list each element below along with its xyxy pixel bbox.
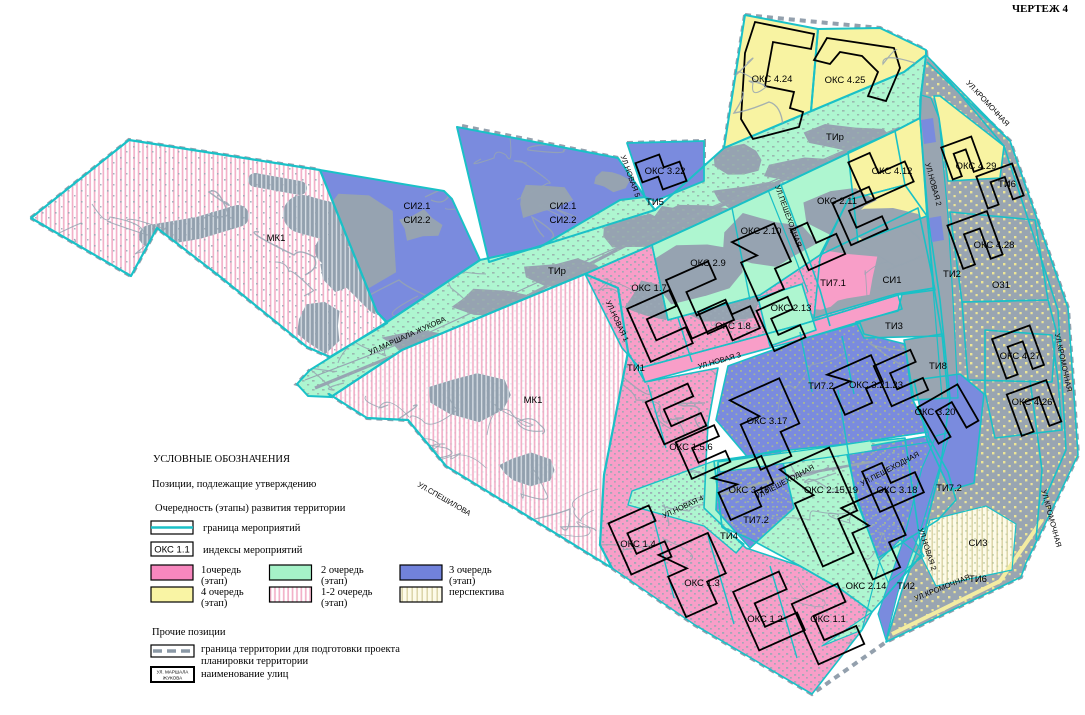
svg-text:(этап): (этап) [321,576,348,587]
svg-text:ЖУКОВА: ЖУКОВА [163,676,183,681]
svg-text:О31: О31 [992,280,1010,291]
svg-text:ТИ5: ТИ5 [646,197,664,208]
svg-text:ТИ3: ТИ3 [885,321,903,332]
svg-text:ОКС 1.3: ОКС 1.3 [684,578,720,589]
svg-text:СИ1: СИ1 [883,275,902,286]
svg-text:СИ2.2: СИ2.2 [550,215,577,226]
svg-text:перспектива: перспектива [449,587,504,598]
svg-text:ОКС 2.10: ОКС 2.10 [741,226,782,237]
svg-text:ТИ2: ТИ2 [943,269,961,280]
svg-text:ОКС 2.11: ОКС 2.11 [817,196,857,207]
svg-text:(этап): (этап) [321,598,348,609]
svg-text:ТИ7.1: ТИ7.1 [820,278,846,289]
svg-text:МК1: МК1 [524,395,543,406]
svg-text:ОКС 1.8: ОКС 1.8 [715,321,751,332]
svg-text:СИ2.2: СИ2.2 [404,215,431,226]
svg-text:Очередность (этапы) развития т: Очередность (этапы) развития территории [155,503,346,514]
svg-text:ТИ7.2: ТИ7.2 [936,483,962,494]
svg-text:ОКС 2.13: ОКС 2.13 [771,303,812,314]
svg-text:ОКС 1.5,6: ОКС 1.5,6 [669,442,712,453]
svg-text:планировки территории: планировки территории [201,656,308,667]
svg-text:ТИ7.2: ТИ7.2 [743,515,769,526]
svg-text:(этап): (этап) [201,576,228,587]
svg-text:граница мероприятий: граница мероприятий [203,523,301,534]
svg-text:2 очередь: 2 очередь [321,565,364,576]
svg-text:ОКС 2.9: ОКС 2.9 [690,258,726,269]
svg-text:ОКС 3.18: ОКС 3.18 [877,485,918,496]
svg-text:СИ2.1: СИ2.1 [550,201,577,212]
svg-text:ТИ1: ТИ1 [627,363,645,374]
svg-text:ТИр: ТИр [826,132,844,143]
svg-text:наименование улиц: наименование улиц [201,669,289,680]
svg-text:индексы мероприятий: индексы мероприятий [203,545,303,556]
svg-text:ОКС 2.14: ОКС 2.14 [846,581,887,592]
svg-text:ОКС 1.2: ОКС 1.2 [747,614,783,625]
svg-text:ОКС 2.15,19: ОКС 2.15,19 [804,485,858,496]
svg-text:Позиции, подлежащие утверждени: Позиции, подлежащие утверждению [152,479,317,490]
svg-text:ОКС 1.1: ОКС 1.1 [154,545,190,556]
svg-text:ТИ7.2: ТИ7.2 [808,381,834,392]
svg-text:УСЛОВНЫЕ ОБОЗНАЧЕНИЯ: УСЛОВНЫЕ ОБОЗНАЧЕНИЯ [153,454,290,465]
svg-text:3 очередь: 3 очередь [449,565,492,576]
svg-text:4 очередь: 4 очередь [201,587,244,598]
svg-text:ОКС 1.4: ОКС 1.4 [620,539,656,550]
svg-text:ТИр: ТИр [548,266,566,277]
svg-text:СИ3: СИ3 [969,538,988,549]
svg-text:ОКС 3.22: ОКС 3.22 [645,166,686,177]
svg-text:ОКС 1.7: ОКС 1.7 [631,283,667,294]
svg-text:МК1: МК1 [267,233,286,244]
svg-text:ОКС 1.1: ОКС 1.1 [810,614,846,625]
svg-text:ТИ6: ТИ6 [969,574,987,585]
svg-text:ТИ2: ТИ2 [897,581,915,592]
svg-text:ЧЕРТЕЖ 4: ЧЕРТЕЖ 4 [1012,3,1069,15]
svg-text:ОКС 4.27: ОКС 4.27 [1000,351,1041,362]
svg-text:(этап): (этап) [201,598,228,609]
svg-text:ТИ6: ТИ6 [998,179,1016,190]
svg-text:СИ2.1: СИ2.1 [404,201,431,212]
svg-text:ОКС 4.25: ОКС 4.25 [825,75,866,86]
svg-text:граница территории для подгото: граница территории для подготовки проект… [201,644,400,655]
svg-text:Прочие позиции: Прочие позиции [152,627,226,638]
svg-text:ОКС 4.29: ОКС 4.29 [956,161,997,172]
svg-text:ОКС 3.17: ОКС 3.17 [747,416,788,427]
svg-text:ОКС 4.12: ОКС 4.12 [872,166,913,177]
svg-text:(этап): (этап) [449,576,476,587]
svg-text:ТИ4: ТИ4 [720,531,738,542]
svg-text:1-2 очередь: 1-2 очередь [321,587,373,598]
svg-text:ОКС 3.20: ОКС 3.20 [915,407,956,418]
svg-text:ОКС 4.24: ОКС 4.24 [752,74,793,85]
svg-text:ТИ8: ТИ8 [929,361,947,372]
svg-text:1очередь: 1очередь [201,565,241,576]
svg-text:ОКС 4.26: ОКС 4.26 [1012,397,1053,408]
svg-text:УЛ. МАРШАЛА: УЛ. МАРШАЛА [157,670,190,675]
svg-text:ОКС 3.21.23: ОКС 3.21.23 [849,380,903,391]
svg-text:ОКС 4.28: ОКС 4.28 [974,240,1015,251]
